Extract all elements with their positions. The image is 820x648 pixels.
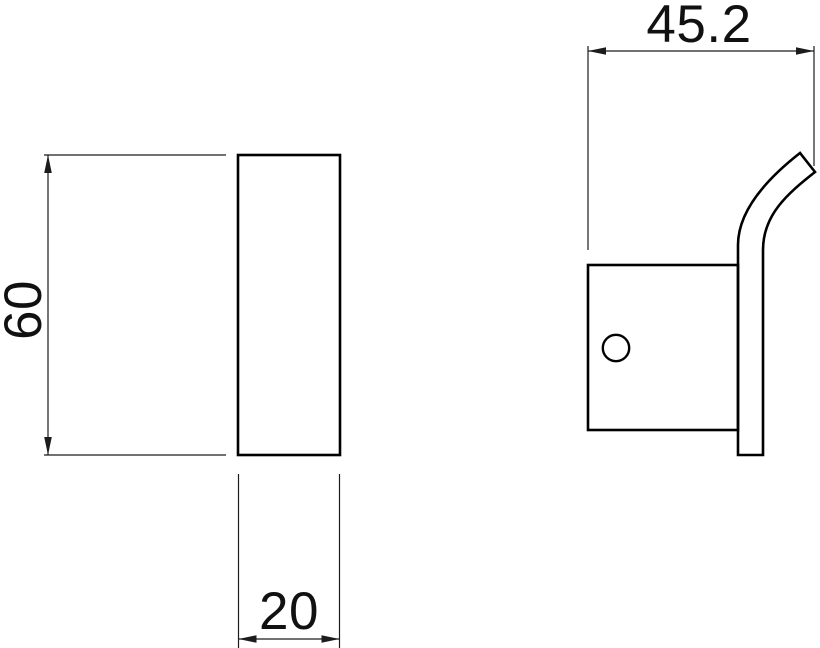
- depth-dim-label: 45.2: [646, 0, 751, 54]
- mounting-hole: [603, 335, 629, 361]
- height-dim-arrow-down: [44, 437, 52, 455]
- side-view-plate-outline: [588, 265, 738, 430]
- width-dim-label: 20: [259, 582, 319, 641]
- depth-dim-arrow-left: [588, 47, 606, 55]
- hook-arm-outline: [738, 153, 815, 455]
- side-view: [588, 153, 815, 455]
- height-dimension: 60: [0, 155, 226, 455]
- width-dim-arrow-left: [239, 635, 257, 643]
- front-view-plate-outline: [238, 155, 340, 455]
- width-dim-arrow-right: [322, 635, 340, 643]
- front-view: [238, 155, 340, 455]
- technical-drawing-canvas: 60 20 45.2: [0, 0, 820, 648]
- depth-dimension: 45.2: [588, 0, 814, 250]
- height-dim-label: 60: [0, 280, 53, 340]
- two-view-hook-drawing: 60 20 45.2: [0, 0, 820, 648]
- height-dim-arrow-up: [44, 155, 52, 173]
- depth-dim-arrow-right: [796, 47, 814, 55]
- width-dimension: 20: [239, 474, 340, 648]
